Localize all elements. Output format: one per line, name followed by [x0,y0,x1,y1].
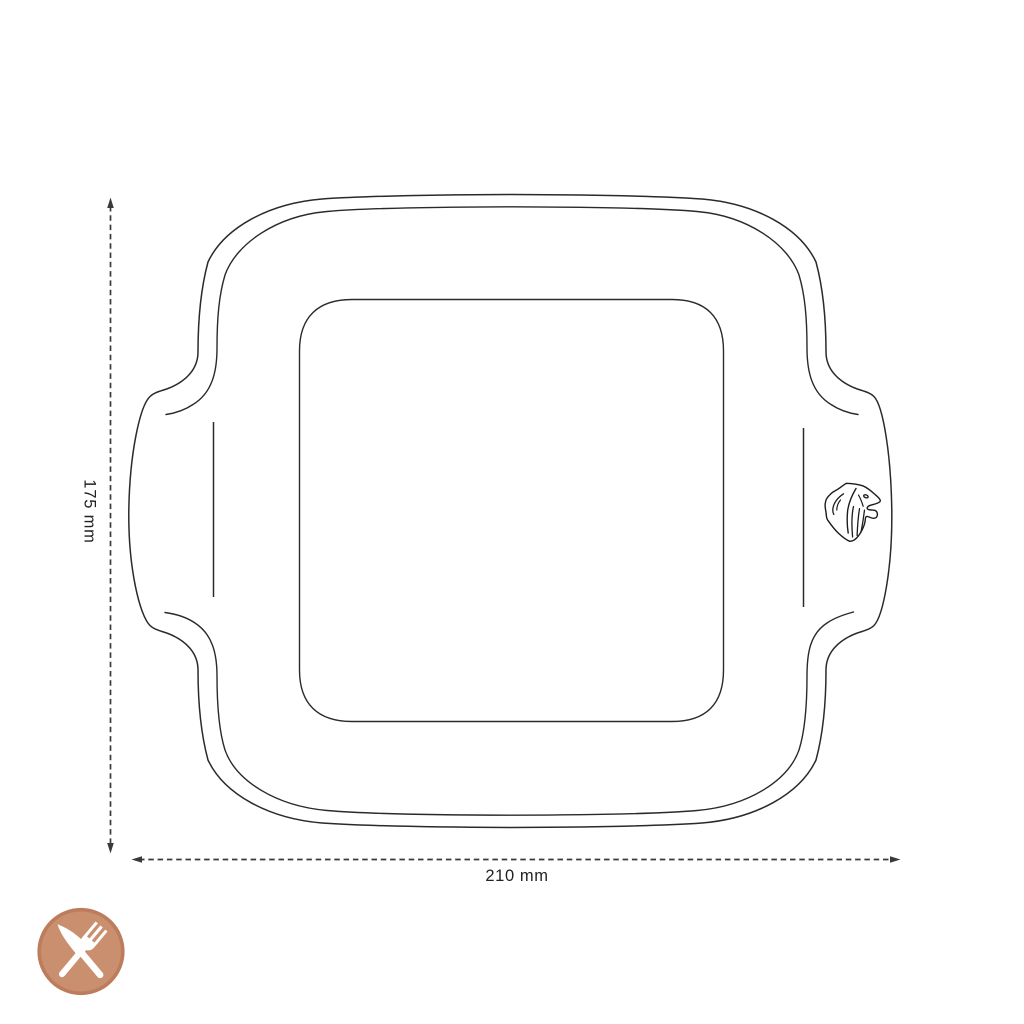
svg-text:175 mm: 175 mm [81,479,99,543]
svg-text:210 mm: 210 mm [485,867,548,885]
